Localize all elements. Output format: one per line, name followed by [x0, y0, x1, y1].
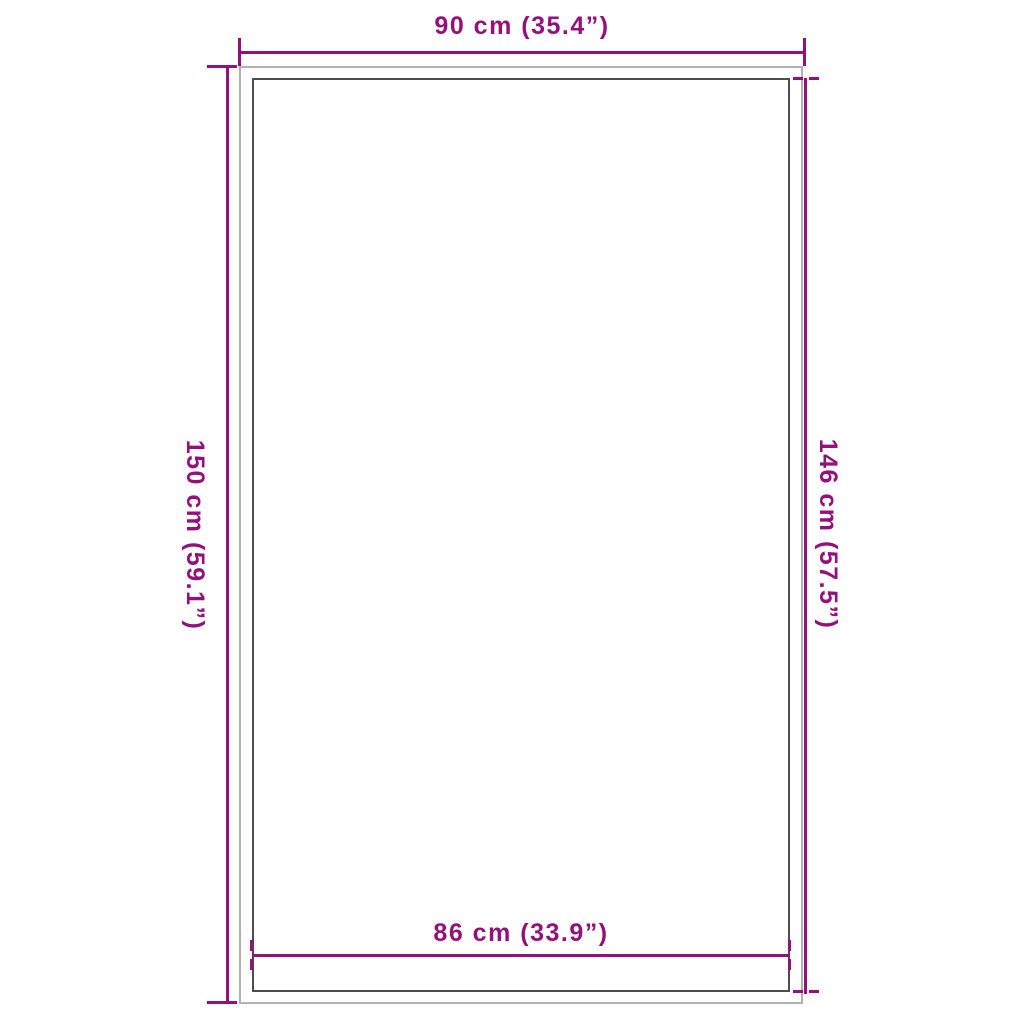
total-height-end-tick-bottom: [207, 1001, 237, 1004]
inner-width-dimension-line: [252, 954, 790, 957]
inner-height-end-tick-bottom-dash: [809, 990, 819, 993]
total-width-end-tick-left: [238, 38, 241, 66]
dimension-diagram: 90 cm (35.4”) 150 cm (59.1”) 146 cm (57.…: [0, 0, 1024, 1024]
inner-height-dimension-line: [804, 78, 807, 994]
total-height-end-tick-top: [207, 65, 237, 68]
inner-width-end-tick-left-dash: [250, 959, 253, 970]
total-width-label: 90 cm (35.4”): [434, 13, 609, 39]
inner-height-end-tick-top-dash: [809, 77, 819, 80]
inner-width-end-tick-right-dash: [788, 959, 791, 970]
inner-width-end-tick-left-dash: [250, 940, 253, 951]
inner-width-label: 86 cm (33.9”): [433, 920, 608, 946]
total-height-label: 150 cm (59.1”): [182, 440, 208, 631]
total-width-end-tick-right: [803, 38, 806, 66]
inner-height-end-tick-top-dash: [793, 77, 803, 80]
total-width-dimension-line: [238, 51, 806, 54]
inner-width-end-tick-right-dash: [788, 940, 791, 951]
product-inner-edge: [252, 78, 790, 992]
inner-height-end-tick-bottom-dash: [793, 990, 803, 993]
total-height-dimension-line: [226, 66, 229, 1004]
inner-height-label: 146 cm (57.5”): [815, 439, 841, 630]
